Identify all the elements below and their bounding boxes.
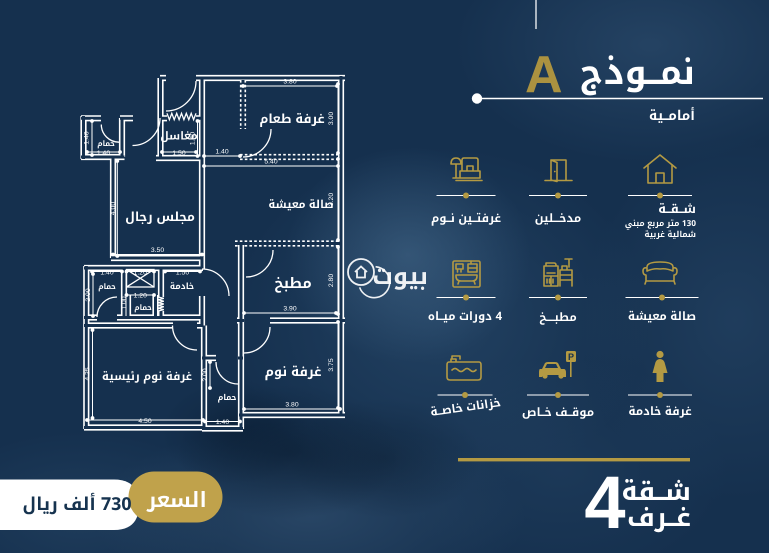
svg-text:P: P: [568, 352, 574, 362]
svg-text:4.00: 4.00: [110, 202, 117, 215]
svg-text:1.40: 1.40: [100, 269, 113, 276]
svg-text:1.50: 1.50: [176, 269, 189, 276]
svg-text:1.20: 1.20: [134, 269, 147, 276]
svg-text:4: 4: [584, 461, 625, 544]
svg-text:1.40: 1.40: [84, 131, 91, 144]
svg-text:2.80: 2.80: [328, 274, 335, 287]
svg-text:3.90: 3.90: [283, 306, 296, 313]
svg-text:1.40: 1.40: [215, 149, 228, 156]
svg-text:3.75: 3.75: [328, 358, 335, 371]
svg-text:4.50: 4.50: [138, 418, 151, 425]
svg-text:1.40: 1.40: [216, 419, 229, 426]
svg-text:4.25: 4.25: [85, 367, 92, 380]
svg-text:3.80: 3.80: [283, 79, 296, 86]
svg-text:2.00: 2.00: [85, 288, 92, 301]
svg-text:2.00: 2.00: [202, 368, 209, 381]
svg-text:1.20: 1.20: [134, 293, 147, 300]
svg-text:3.00: 3.00: [328, 112, 335, 125]
svg-text:1.40: 1.40: [97, 150, 110, 157]
svg-text:5.40: 5.40: [264, 159, 277, 166]
svg-text:3.50: 3.50: [151, 247, 164, 254]
svg-text:3.80: 3.80: [285, 402, 298, 409]
svg-text:1.00: 1.00: [121, 296, 128, 309]
svg-text:A: A: [525, 46, 563, 104]
svg-text:1.50: 1.50: [172, 150, 185, 157]
